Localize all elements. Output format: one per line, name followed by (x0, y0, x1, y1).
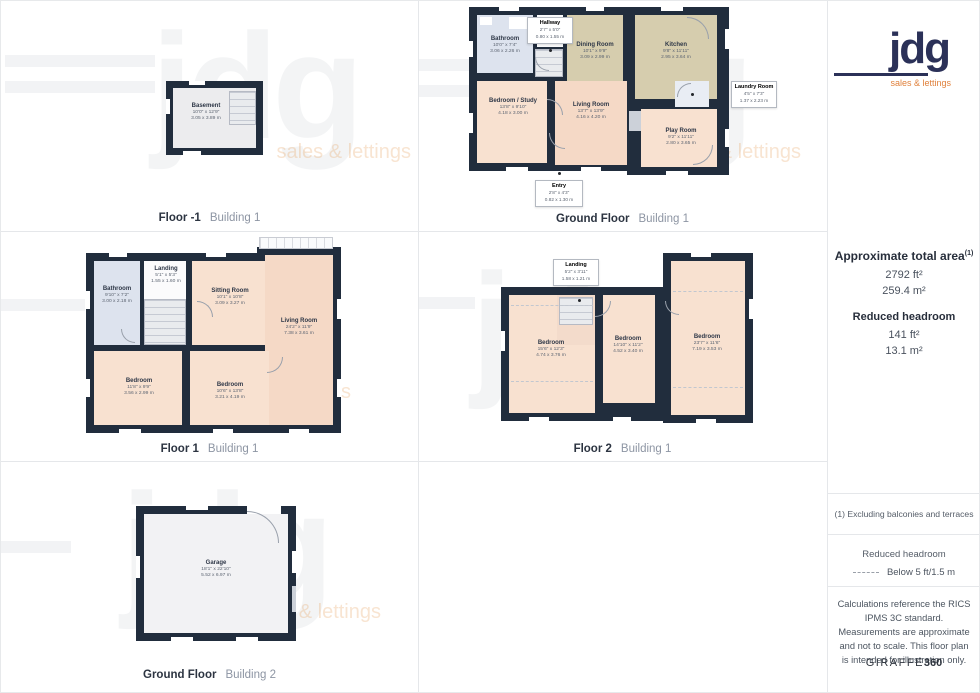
room-label-living-gf: Living Room 13'7" x 13'9" 4.16 x 4.20 m (561, 101, 621, 122)
room-label-bed1-f1: Bedroom 11'8" x 9'9" 3.56 x 2.99 m (109, 377, 169, 398)
room-label-sitting: Sitting Room 10'1" x 10'8" 3.09 x 3.27 m (199, 287, 261, 308)
panel-label-ground-floor-b1: Ground Floor Building 1 (418, 213, 827, 225)
window (171, 637, 193, 641)
watermark-bar (5, 55, 155, 67)
giraffe360-logo: GIRAFFE360 (827, 657, 980, 669)
room-label-living-f1: Living Room 24'2" x 11'9" 7.38 x 3.61 m (271, 317, 327, 338)
window (586, 7, 604, 11)
logo-underline (834, 73, 928, 76)
room-label-bathroom: Bathroom 10'0" x 7'4" 3.06 x 2.26 m (478, 35, 532, 56)
footnote-marker: (1) (965, 250, 974, 257)
grid-line (827, 493, 980, 494)
room-label-bed1-f2: Bedroom 15'6" x 12'3" 4.74 x 3.76 m (521, 339, 581, 360)
legend-title: Reduced headroom (827, 549, 980, 560)
room-label-landing-f1: Landing 5'1" x 5'3" 1.55 x 1.60 m (143, 265, 189, 286)
total-area-ft: 2792 ft² (827, 269, 980, 281)
callout-laundry: Laundry Room 4'5" x 7'3" 1.37 x 2.23 m (731, 81, 777, 108)
panel-label-floor2: Floor 2 Building 1 (418, 443, 827, 455)
attic-stairs-outline (259, 237, 333, 249)
door-segment (292, 586, 296, 612)
footnote-balconies: (1) Excluding balconies and terraces (827, 509, 980, 519)
room-label-play: Play Room 9'2" x 11'11" 2.80 x 3.65 m (653, 127, 709, 148)
window (506, 167, 528, 171)
reduced-headroom-dash (511, 305, 593, 306)
window (337, 299, 341, 319)
brand-logo: jdg (869, 27, 949, 71)
window (696, 419, 716, 423)
stairs (559, 297, 593, 325)
window (166, 99, 170, 114)
room-label-garage: Garage 18'1" x 22'10" 5.52 x 6.97 m (185, 559, 247, 580)
grid-line (418, 1, 419, 693)
watermark-bar (1, 541, 71, 553)
grid-line (1, 231, 827, 232)
reduced-headroom-dash (673, 387, 743, 388)
panel-label-floor1: Floor 1 Building 1 (1, 443, 418, 455)
window (469, 41, 473, 57)
window (86, 379, 90, 397)
panel-label-ground-floor-b2: Ground Floor Building 2 (1, 669, 418, 681)
reduced-headroom-dash (673, 291, 743, 292)
window (183, 151, 201, 155)
watermark-bar (419, 59, 469, 71)
reduced-headroom-m: 13.1 m² (827, 345, 980, 357)
room-label-bathroom-f1: Bathroom 9'10" x 7'2" 3.00 x 2.18 m (89, 285, 145, 306)
room-label-kitchen: Kitchen 9'8" x 11'11" 2.95 x 3.64 m (646, 41, 706, 62)
legend-text: Below 5 ft/1.5 m (887, 567, 955, 578)
total-area-title: Approximate total area(1) (827, 249, 980, 263)
reduced-headroom-ft: 141 ft² (827, 329, 980, 341)
callout-leader-dot (549, 49, 552, 52)
reduced-headroom-dash (511, 381, 593, 382)
reduced-headroom-title: Reduced headroom (827, 311, 980, 323)
callout-leader-dot (578, 299, 581, 302)
watermark-bar (1, 299, 85, 311)
room-label-bed3-f2: Bedroom 23'7" x 11'6" 7.19 x 3.53 m (677, 333, 737, 354)
window (581, 167, 601, 171)
window (136, 556, 140, 578)
window (613, 417, 631, 421)
window (289, 429, 309, 433)
window (119, 429, 141, 433)
watermark-bar (419, 297, 475, 309)
room-label-bedroom-study: Bedroom / Study 13'8" x 9'10" 4.18 x 3.0… (481, 97, 545, 118)
window (206, 253, 226, 257)
grid-line (1, 461, 827, 462)
grid-line (827, 586, 980, 587)
room-living-gf (555, 81, 627, 165)
room-label-basement: Basement 10'0" x 12'9" 3.05 x 3.89 m (176, 102, 236, 123)
window (186, 506, 208, 510)
callout-entry: Entry 2'8" x 4'3" 0.82 x 1.30 m (535, 180, 583, 207)
room-label-bed2-f1: Bedroom 10'6" x 13'8" 3.21 x 4.19 m (199, 381, 261, 402)
room-living-f1 (265, 255, 333, 425)
grid-line (827, 534, 980, 535)
legend-dash-sample (853, 572, 879, 573)
room-bedroom-study (477, 81, 547, 163)
passage (629, 111, 641, 131)
legend-row: Below 5 ft/1.5 m (827, 567, 980, 578)
watermark-bar (5, 81, 155, 93)
window (236, 637, 258, 641)
brand-tagline: sales & lettings (846, 78, 951, 88)
bath-fixture (509, 17, 529, 29)
window (725, 129, 729, 147)
window (749, 299, 753, 319)
window (109, 253, 127, 257)
callout-leader-dot (691, 93, 694, 96)
window (725, 29, 729, 49)
window (189, 81, 205, 85)
watermark-bar (419, 85, 469, 97)
bath-fixture (480, 17, 492, 25)
window (499, 7, 519, 11)
callout-landing-f2: Landing 5'2" x 3'11" 1.58 x 1.21 m (553, 259, 599, 286)
window (292, 551, 296, 573)
window (213, 429, 233, 433)
room-label-bed2-f2: Bedroom 14'10" x 11'2" 4.52 x 3.40 m (598, 335, 658, 356)
window (469, 113, 473, 133)
callout-hallway: Hallway 2'7" x 5'0" 0.80 x 1.55 m (527, 17, 573, 44)
window (501, 331, 505, 351)
window (337, 379, 341, 397)
window (666, 171, 688, 175)
window (661, 7, 683, 11)
stairs (144, 299, 186, 345)
callout-leader-dot (558, 172, 561, 175)
window (691, 253, 711, 257)
floorplan-sheet: jdg sales & lettings jdg sales & letting… (0, 0, 980, 693)
window (529, 417, 549, 421)
total-area-m: 259.4 m² (827, 285, 980, 297)
room-label-dining: Dining Room 10'1" x 9'9" 3.09 x 2.99 m (565, 41, 625, 62)
panel-label-floor-minus1: Floor -1 Building 1 (1, 212, 418, 224)
